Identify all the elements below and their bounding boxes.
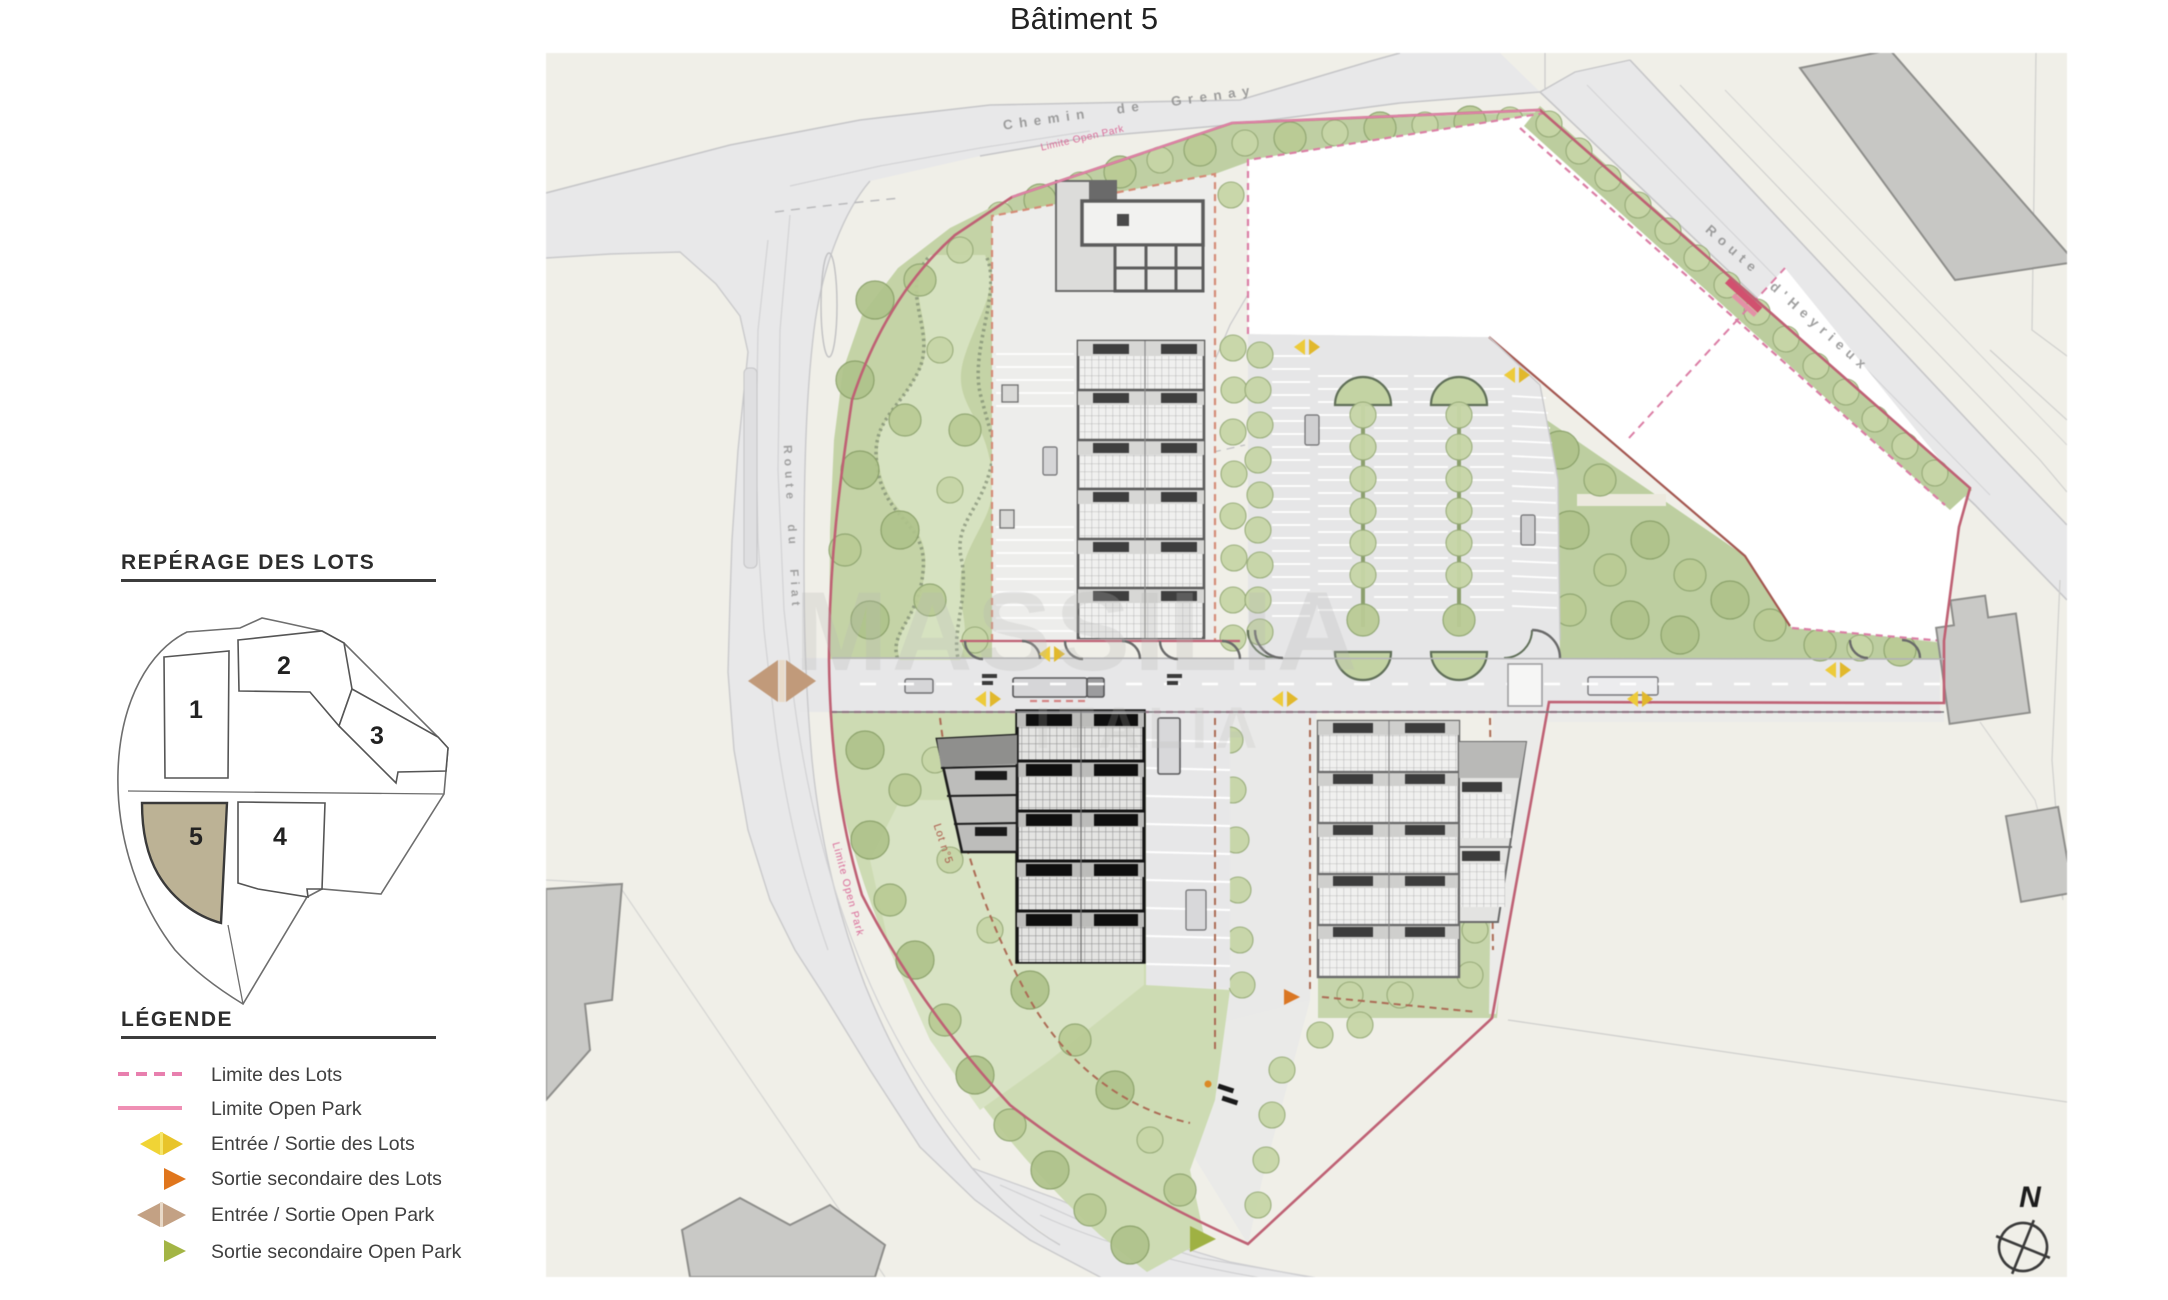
svg-text:3: 3 bbox=[370, 722, 384, 750]
svg-text:MASSILIA: MASSILIA bbox=[794, 569, 1361, 694]
svg-text:2: 2 bbox=[277, 652, 291, 680]
svg-text:ITALIA: ITALIA bbox=[1035, 696, 1266, 761]
svg-text:N: N bbox=[2019, 1181, 2042, 1214]
svg-text:1: 1 bbox=[189, 696, 203, 724]
svg-text:5: 5 bbox=[189, 823, 203, 851]
svg-text:4: 4 bbox=[273, 823, 287, 851]
